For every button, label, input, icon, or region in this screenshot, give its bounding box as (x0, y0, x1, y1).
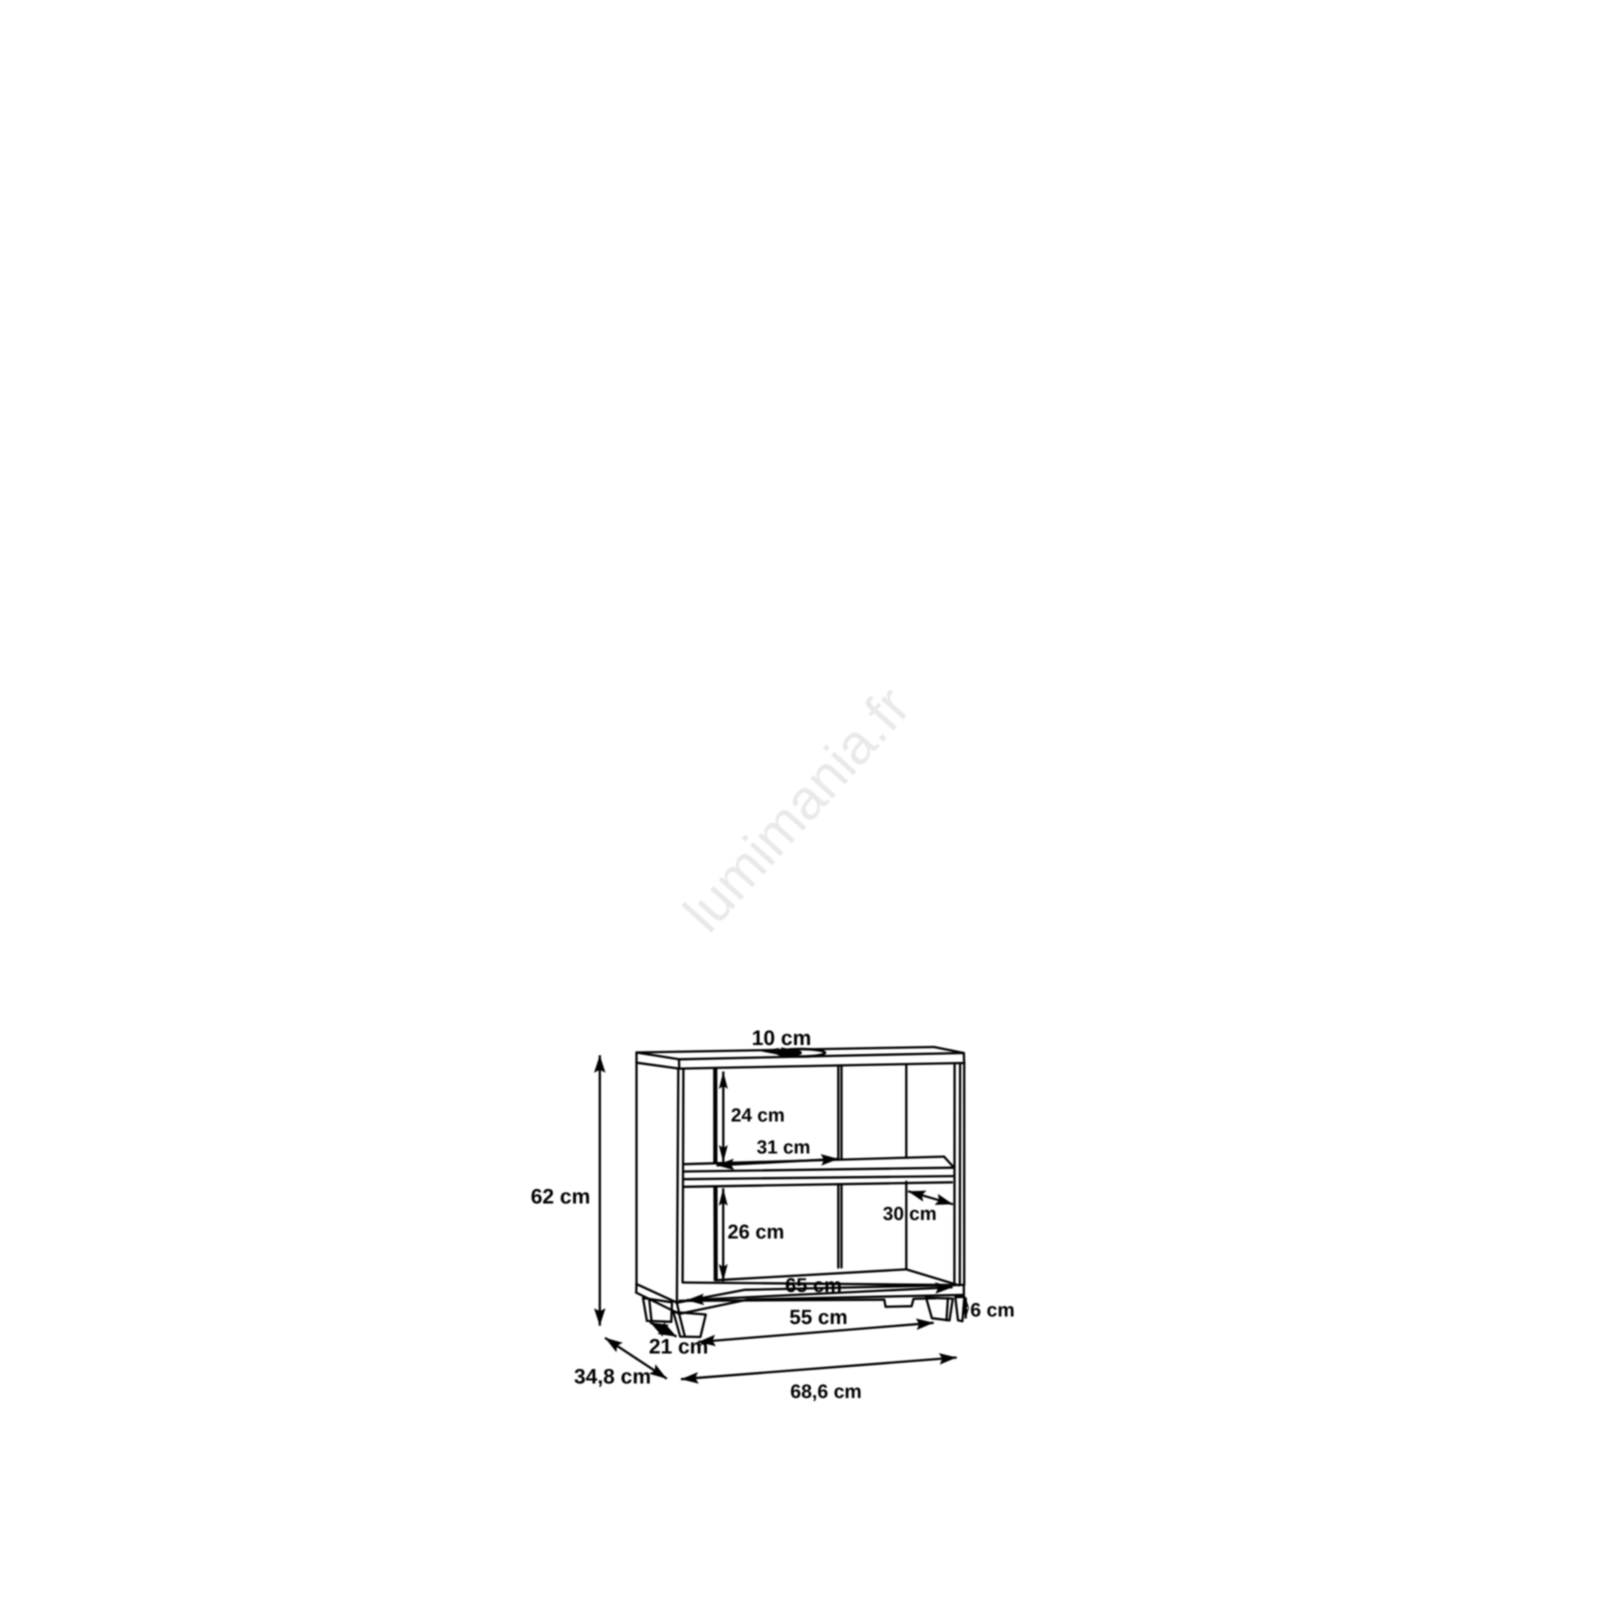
svg-text:65 cm: 65 cm (785, 1275, 842, 1297)
svg-text:26 cm: 26 cm (728, 1221, 785, 1243)
svg-text:24 cm: 24 cm (731, 1106, 785, 1127)
svg-text:21 cm: 21 cm (649, 1335, 709, 1358)
svg-text:34,8 cm: 34,8 cm (574, 1366, 651, 1389)
svg-text:6 cm: 6 cm (970, 1299, 1014, 1321)
svg-text:10 cm: 10 cm (752, 1027, 812, 1050)
svg-text:30 cm: 30 cm (883, 1204, 937, 1225)
svg-text:68,6 cm: 68,6 cm (790, 1381, 862, 1403)
svg-text:62 cm: 62 cm (531, 1185, 591, 1208)
svg-text:31 cm: 31 cm (757, 1138, 811, 1159)
svg-text:55 cm: 55 cm (789, 1306, 847, 1329)
